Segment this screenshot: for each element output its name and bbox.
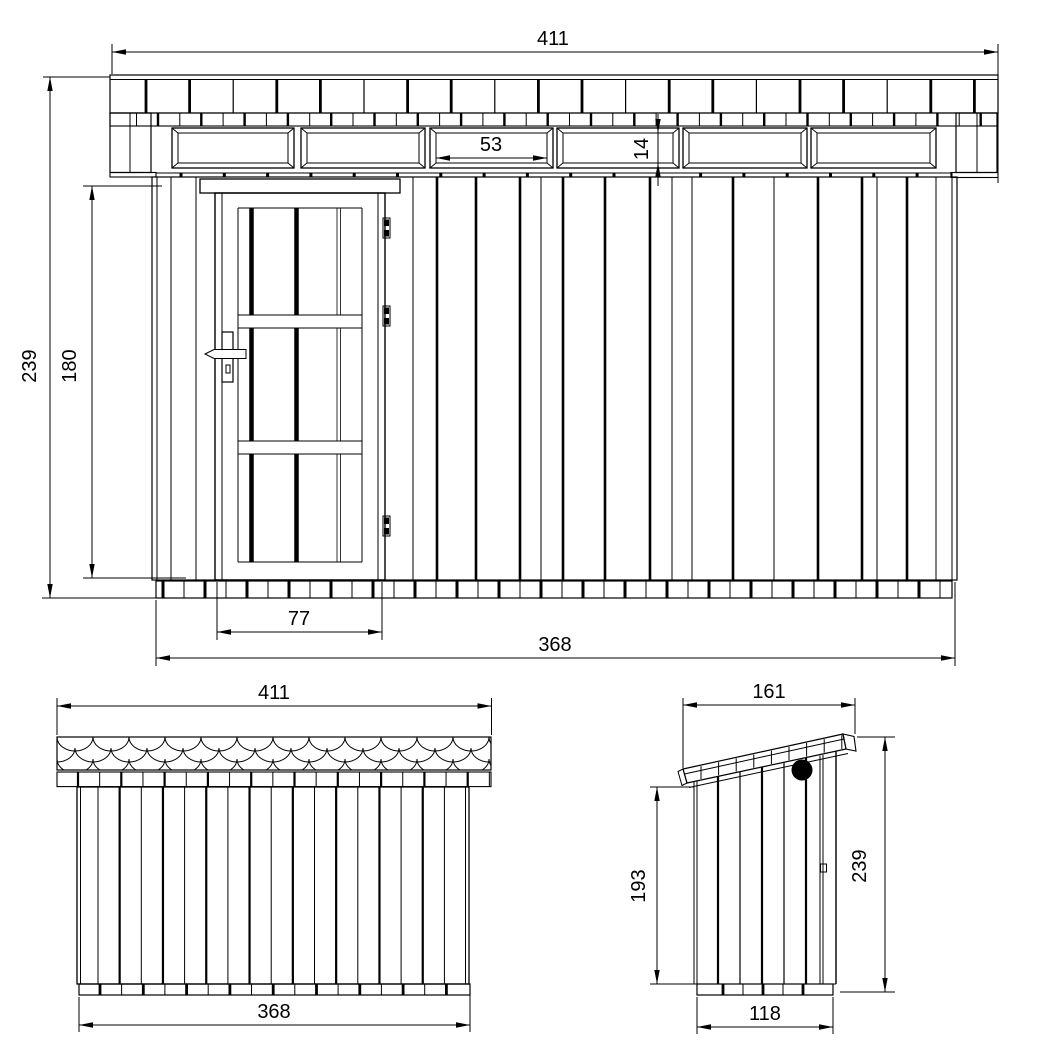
rear-wall-siding (77, 787, 469, 984)
roof-beam-end-circle (792, 760, 813, 781)
dim-front-overall-height: 239 (19, 349, 41, 382)
side-elevation-view: 161 193 239 118 (628, 681, 895, 1034)
door-hinge (383, 516, 390, 536)
rear-elevation-view: 411 368 (39, 682, 525, 1032)
dim-front-overall-width: 411 (537, 28, 569, 50)
side-wall-siding (694, 751, 836, 984)
dim-transom-window-height: 14 (631, 138, 653, 160)
dim-side-overall-height: 239 (849, 849, 871, 882)
dim-front-base-width: 368 (538, 634, 571, 656)
front-door (200, 179, 400, 580)
rear-shingle-roof (39, 737, 525, 787)
drawing-canvas: 411 239 180 53 14 77 368 411 368 161 193 (0, 0, 1062, 1057)
door-hinge (383, 306, 390, 326)
side-base-skirt (697, 984, 833, 995)
dim-transom-window-width: 53 (480, 134, 502, 156)
front-transom-windows (172, 128, 936, 168)
front-wall-siding (152, 173, 957, 581)
rear-base-skirt (79, 984, 470, 995)
shed-technical-drawing: 411 239 180 53 14 77 368 411 368 161 193 (0, 0, 1062, 1057)
front-roof-fascia (110, 75, 998, 178)
front-base-skirt (156, 581, 952, 598)
dim-front-wall-height: 180 (59, 349, 81, 382)
dim-side-rear-wall-height: 193 (628, 869, 650, 902)
dim-rear-roof-width: 411 (258, 682, 290, 704)
front-elevation-view: 411 239 180 53 14 77 368 (19, 28, 998, 666)
door-hinge (383, 218, 390, 238)
dim-front-door-width: 77 (288, 608, 310, 630)
dim-side-base-depth: 118 (749, 1003, 781, 1025)
door-handle (205, 332, 246, 382)
dim-rear-wall-width: 368 (257, 1001, 290, 1023)
dim-side-roof-depth: 161 (752, 681, 785, 703)
side-sloped-roof (678, 734, 856, 788)
